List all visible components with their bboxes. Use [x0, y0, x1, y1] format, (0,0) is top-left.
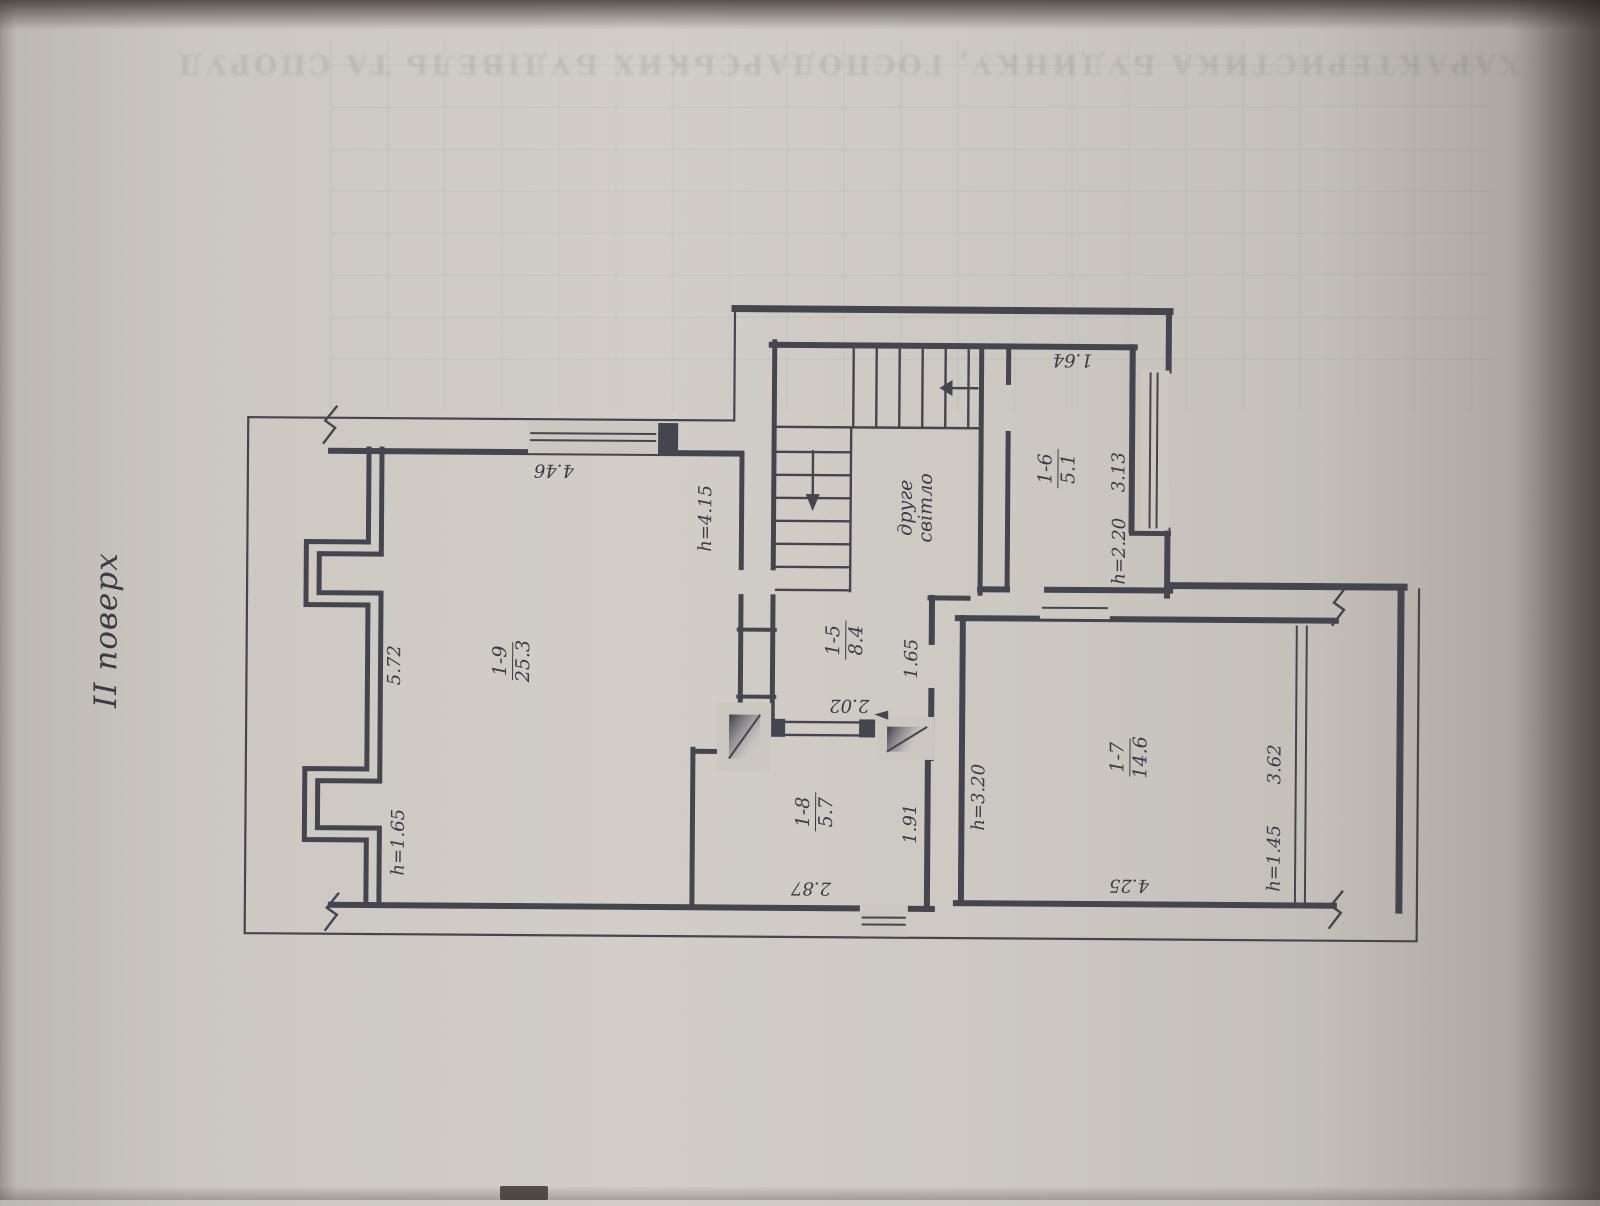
- room-label-1-9: 1-9 25.3: [491, 640, 534, 683]
- scanned-floor-plan-page: { "page": { "floor_title": "II поверх", …: [0, 0, 1600, 1200]
- room-id: 1-6: [1036, 449, 1058, 488]
- dim-h-1-65: h=1.65: [390, 809, 409, 876]
- dim-h-1-45: h=1.45: [1266, 825, 1285, 892]
- room-label-1-5: 1-5 8.4: [824, 621, 867, 660]
- dim-1-65: 1.65: [903, 639, 922, 679]
- dim-h-4-15: h=4.15: [697, 485, 716, 552]
- dim-3-62: 3.62: [1266, 744, 1285, 784]
- room-id: 1-5: [824, 621, 846, 660]
- room-label-1-7: 1-7 14.6: [1108, 736, 1151, 779]
- room-id: 1-7: [1108, 738, 1130, 777]
- room-label-1-6: 1-6 5.1: [1036, 449, 1079, 488]
- stair-note-line2: світло: [916, 473, 936, 542]
- dim-4-46: 4.46: [534, 460, 574, 479]
- dim-1-91: 1.91: [902, 804, 921, 844]
- room-area: 25.3: [513, 640, 534, 682]
- floor-plan: II поверх 1-9 25.3 1-5 8.4 1-6 5.1 1-8 5…: [0, 0, 1600, 1206]
- dim-2-87: 2.87: [791, 877, 831, 896]
- dim-5-72: 5.72: [386, 645, 405, 685]
- dim-2-02: 2.02: [829, 695, 869, 714]
- room-area: 8.4: [846, 625, 867, 655]
- stair-arrow-down: [806, 494, 820, 511]
- room-label-1-8: 1-8 5.7: [794, 793, 837, 832]
- room-id: 1-9: [491, 642, 513, 681]
- floor-title: II поверх: [90, 552, 124, 708]
- room-area: 5.1: [1058, 454, 1079, 484]
- shaft-symbols: [717, 702, 934, 773]
- dim-1-64: 1.64: [1053, 349, 1093, 368]
- staircase: [774, 348, 980, 593]
- dim-h-2-20: h=2.20: [1111, 518, 1130, 585]
- room-area: 5.7: [816, 797, 837, 827]
- break-marks: [320, 406, 1348, 938]
- stair-note-second-light: друге світло: [896, 473, 936, 543]
- room-id: 1-8: [794, 793, 816, 832]
- room-area: 14.6: [1130, 736, 1151, 778]
- dim-4-25: 4.25: [1109, 875, 1149, 894]
- floor-plan-drawing: [0, 0, 1600, 1206]
- dim-h-3-20: h=3.20: [970, 764, 989, 831]
- walls-layer: [304, 306, 1406, 913]
- dim-3-13: 3.13: [1110, 452, 1129, 492]
